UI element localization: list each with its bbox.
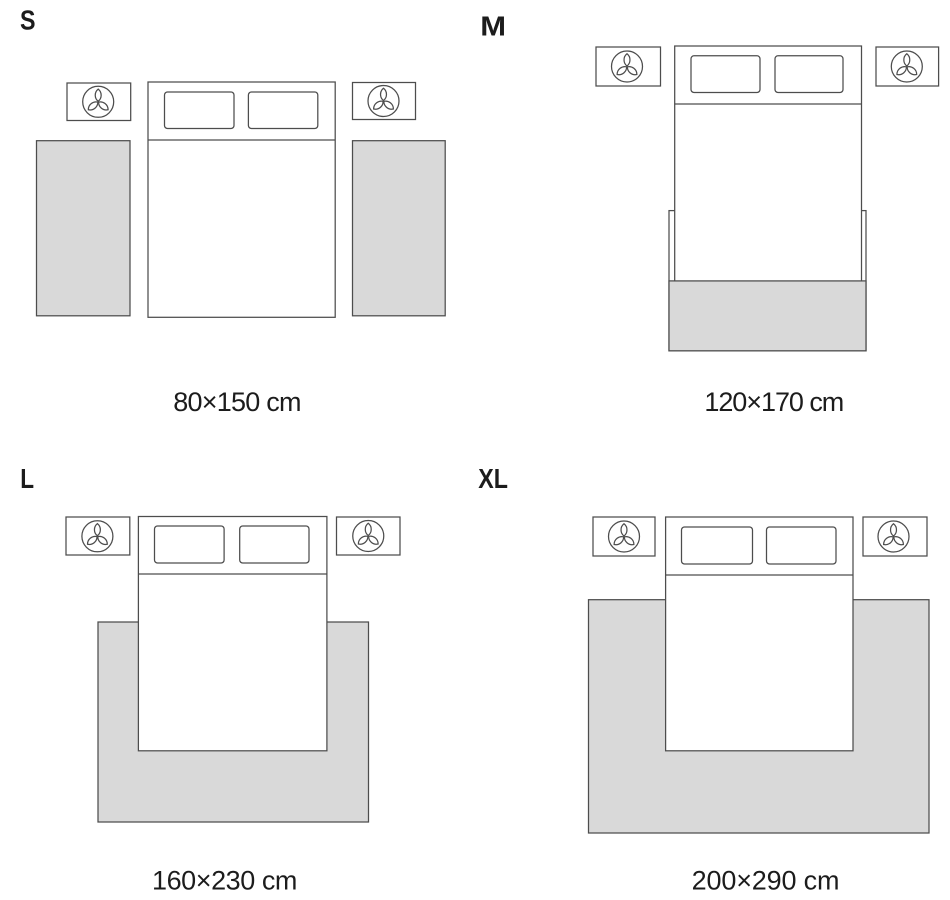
svg-text:80×150 cm: 80×150 cm: [173, 387, 301, 417]
svg-text:S: S: [20, 5, 36, 36]
svg-text:160×230 cm: 160×230 cm: [152, 866, 297, 896]
svg-text:120×170 cm: 120×170 cm: [704, 387, 843, 417]
svg-text:M: M: [480, 11, 506, 42]
svg-text:XL: XL: [478, 463, 508, 494]
svg-text:200×290 cm: 200×290 cm: [692, 866, 840, 896]
svg-text:L: L: [20, 463, 34, 494]
